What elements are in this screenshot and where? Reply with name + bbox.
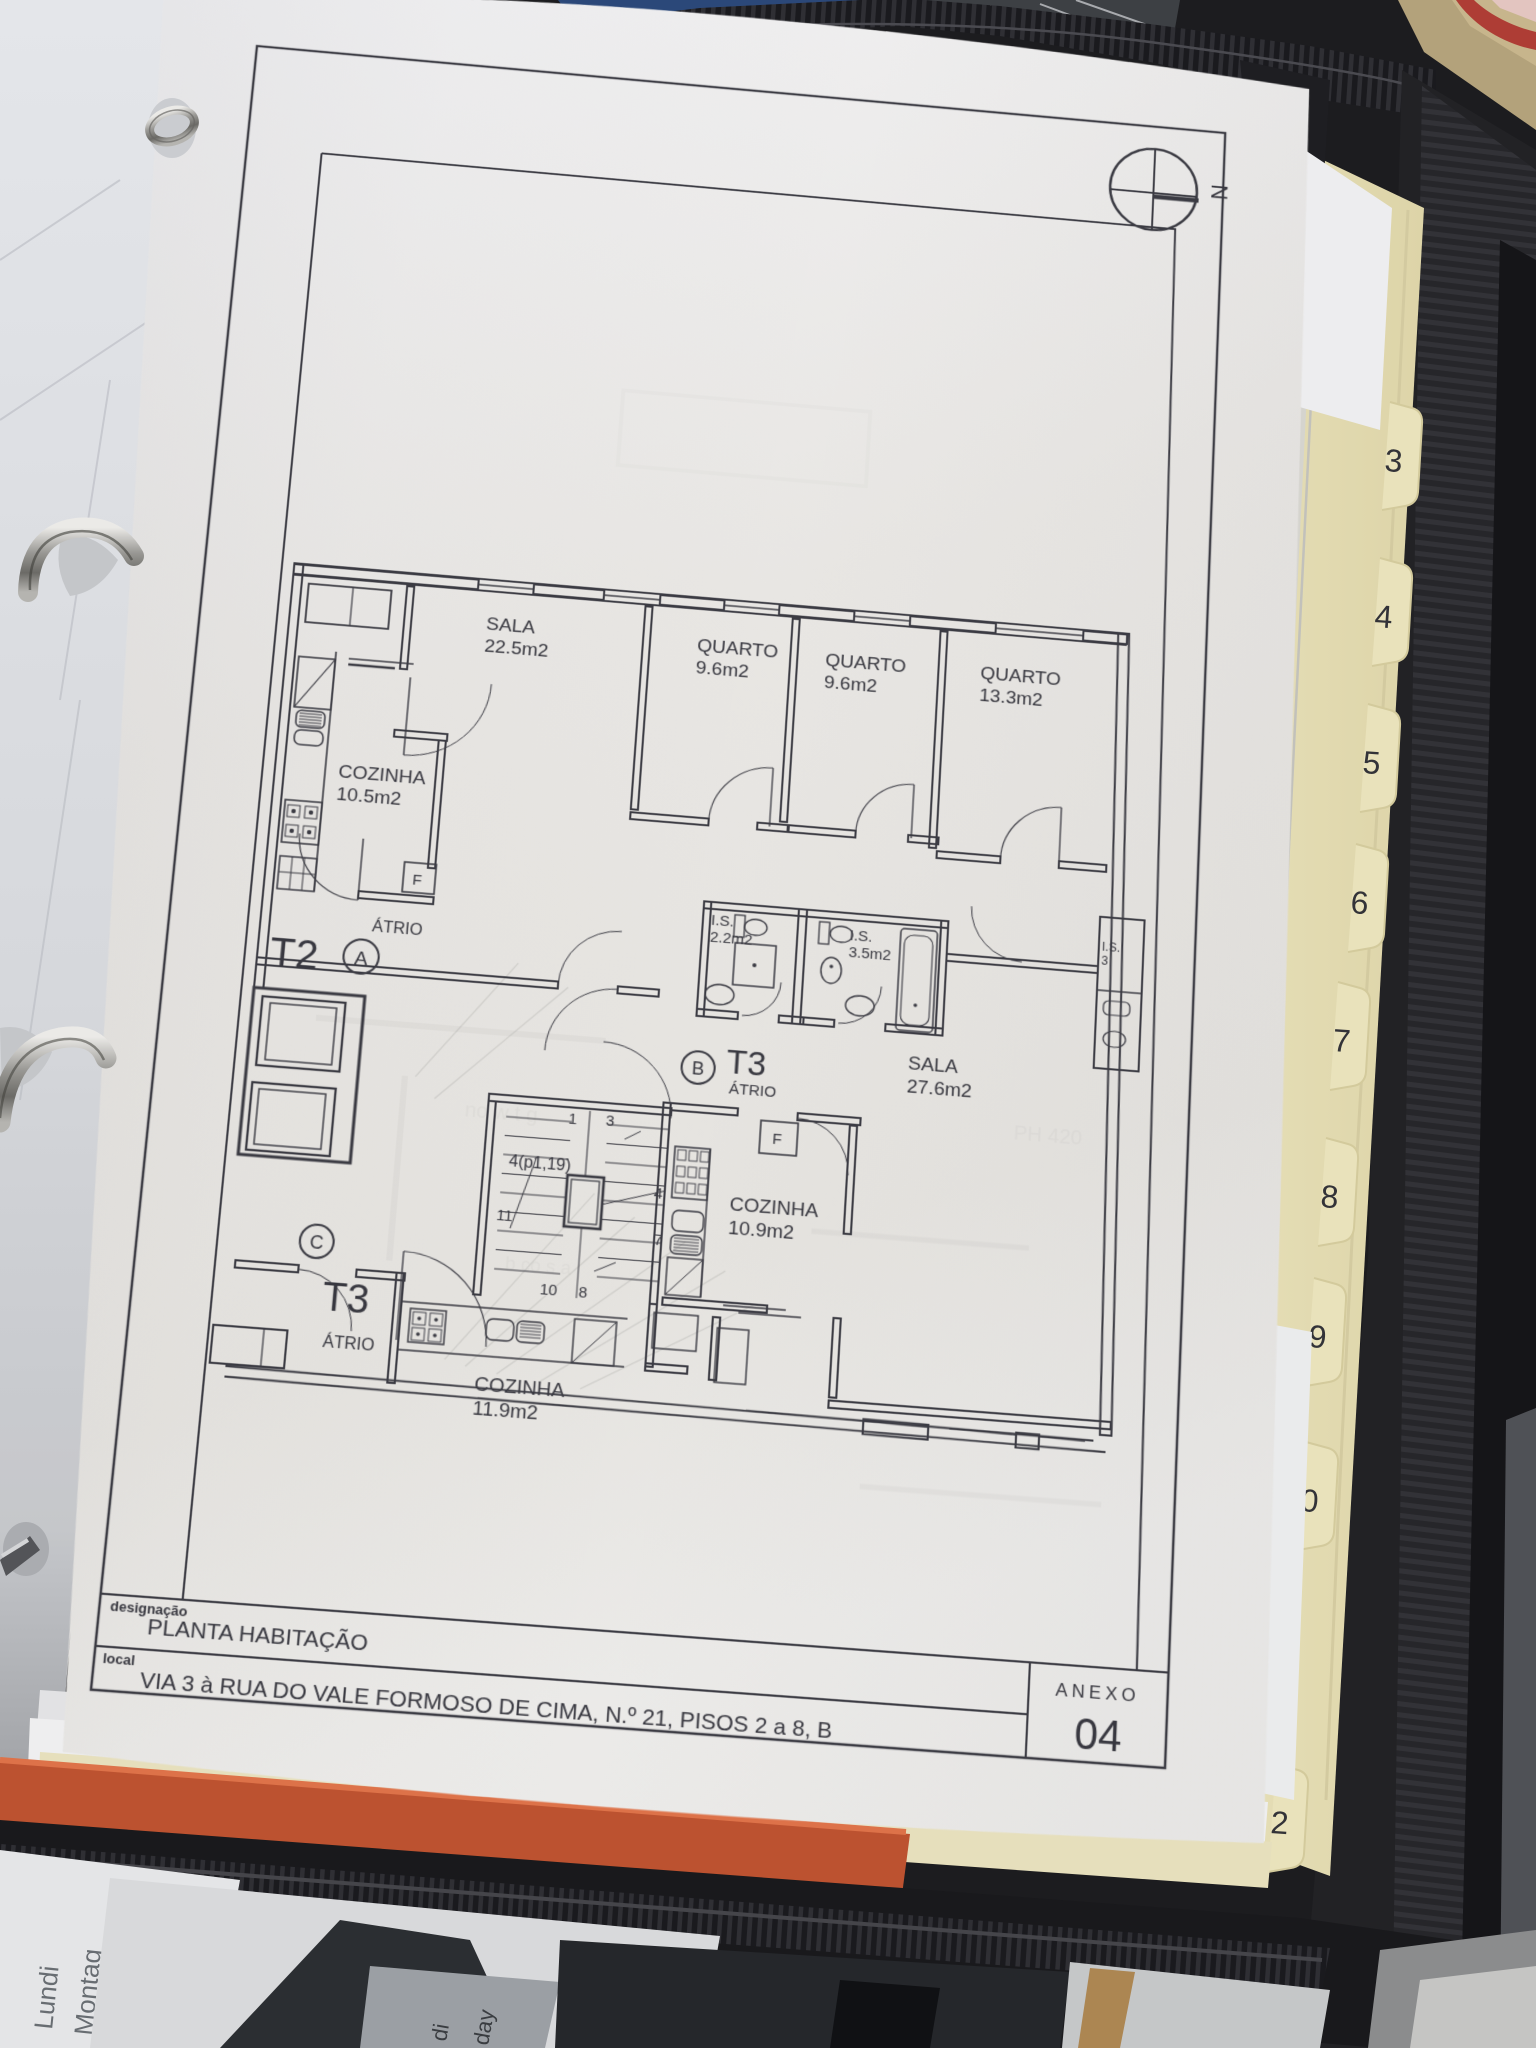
svg-text:3: 3 <box>605 1111 615 1129</box>
svg-text:3: 3 <box>1384 442 1404 479</box>
svg-text:8: 8 <box>1320 1178 1340 1215</box>
svg-text:6: 6 <box>1350 884 1370 921</box>
svg-text:04: 04 <box>1073 1709 1122 1761</box>
svg-text:11: 11 <box>496 1206 514 1225</box>
svg-text:I.S.: I.S. <box>1102 941 1121 955</box>
svg-text:B: B <box>691 1058 705 1079</box>
svg-text:1: 1 <box>568 1109 578 1127</box>
svg-text:8: 8 <box>578 1283 588 1301</box>
svg-text:local: local <box>102 1650 136 1669</box>
svg-text:SALA: SALA <box>485 613 536 637</box>
svg-text:F: F <box>412 871 423 889</box>
svg-text:SALA: SALA <box>908 1052 959 1077</box>
svg-text:T3: T3 <box>320 1274 371 1322</box>
svg-text:A: A <box>353 947 368 969</box>
svg-text:10: 10 <box>539 1280 558 1299</box>
svg-text:T2: T2 <box>268 929 320 978</box>
svg-text:5: 5 <box>1362 744 1382 781</box>
svg-text:7: 7 <box>1332 1022 1352 1059</box>
svg-text:3: 3 <box>1101 955 1108 968</box>
svg-text:2.2m2: 2.2m2 <box>709 928 753 948</box>
svg-text:N: N <box>1206 183 1232 201</box>
svg-text:T3: T3 <box>725 1043 767 1084</box>
svg-text:3.5m2: 3.5m2 <box>848 943 892 963</box>
svg-text:4: 4 <box>1374 598 1394 635</box>
svg-text:I.S.: I.S. <box>711 911 735 930</box>
svg-text:ÁTRIO: ÁTRIO <box>322 1332 375 1355</box>
svg-text:C: C <box>309 1232 325 1254</box>
svg-text:I.S.: I.S. <box>849 926 873 945</box>
svg-text:F: F <box>772 1130 783 1148</box>
